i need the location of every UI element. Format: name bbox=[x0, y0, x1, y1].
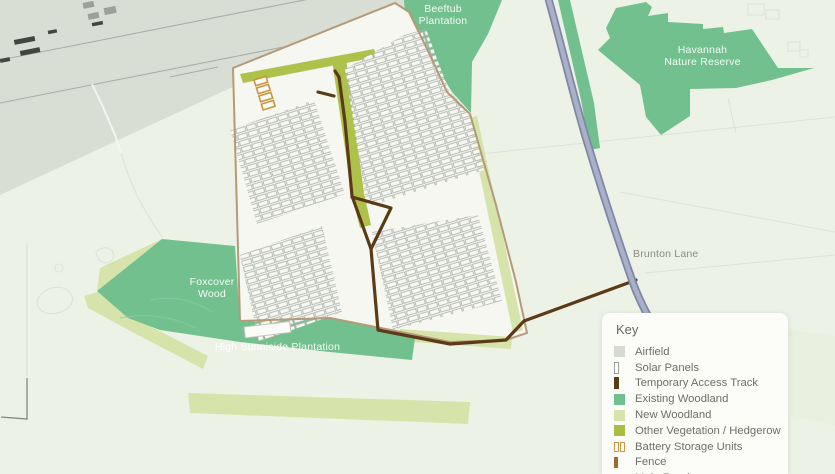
legend-item-label: Airfield bbox=[635, 346, 670, 358]
legend-swatch-vrect bbox=[614, 377, 628, 389]
legend-swatch-square bbox=[614, 410, 628, 421]
label-brunton-lane: Brunton Lane bbox=[633, 248, 723, 260]
legend-item-label: Fence bbox=[635, 456, 666, 468]
legend-swatch-vrect bbox=[614, 362, 628, 374]
legend-swatch-battery bbox=[614, 442, 628, 452]
legend-item: Other Vegetation / Hedgerow bbox=[614, 423, 788, 439]
legend-item-label: Battery Storage Units bbox=[635, 441, 742, 453]
right-edge-vegetation bbox=[788, 330, 835, 425]
legend-item: Main Road bbox=[614, 470, 788, 474]
legend-item: Fence bbox=[614, 455, 788, 471]
label-beeftub-plantation: Beeftub Plantation bbox=[395, 3, 491, 27]
legend-item: Solar Panels bbox=[614, 360, 788, 376]
legend-item: Temporary Access Track bbox=[614, 376, 788, 392]
legend-items: AirfieldSolar PanelsTemporary Access Tra… bbox=[614, 344, 788, 474]
map-canvas: Beeftub Plantation Havannah Nature Reser… bbox=[0, 0, 835, 474]
legend-item: Airfield bbox=[614, 344, 788, 360]
legend-swatch-square bbox=[614, 394, 628, 405]
legend-item-label: Solar Panels bbox=[635, 362, 699, 374]
label-havannah-nature-reserve: Havannah Nature Reserve bbox=[645, 44, 760, 68]
legend-item: Existing Woodland bbox=[614, 391, 788, 407]
legend-item-label: Temporary Access Track bbox=[635, 377, 758, 389]
legend-panel: Key AirfieldSolar PanelsTemporary Access… bbox=[602, 313, 788, 474]
legend-item: New Woodland bbox=[614, 407, 788, 423]
legend-title: Key bbox=[616, 322, 788, 337]
label-foxcover-wood: Foxcover Wood bbox=[167, 276, 257, 300]
legend-item: Battery Storage Units bbox=[614, 439, 788, 455]
legend-swatch-vrect-small bbox=[614, 457, 628, 468]
legend-swatch-square bbox=[614, 346, 628, 357]
legend-item-label: Existing Woodland bbox=[635, 393, 728, 405]
label-high-sunniside-plantation: High Sunniside Plantation bbox=[180, 341, 375, 353]
legend-swatch-square bbox=[614, 425, 628, 436]
legend-item-label: New Woodland bbox=[635, 409, 711, 421]
legend-item-label: Other Vegetation / Hedgerow bbox=[635, 425, 781, 437]
